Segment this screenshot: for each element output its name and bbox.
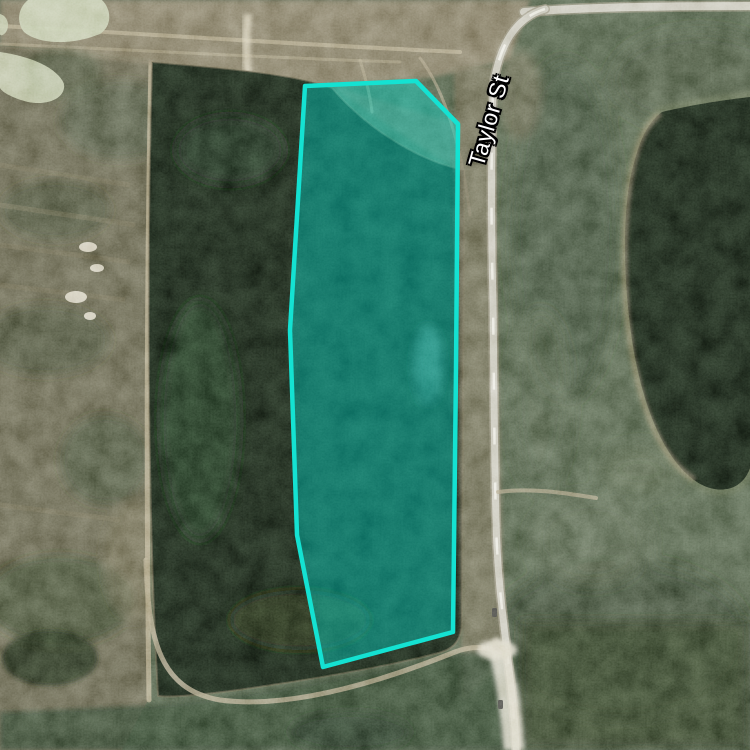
- map-viewport[interactable]: Taylor St: [0, 0, 750, 750]
- parcel-polygon[interactable]: [290, 81, 458, 667]
- satellite-canvas: [0, 0, 750, 750]
